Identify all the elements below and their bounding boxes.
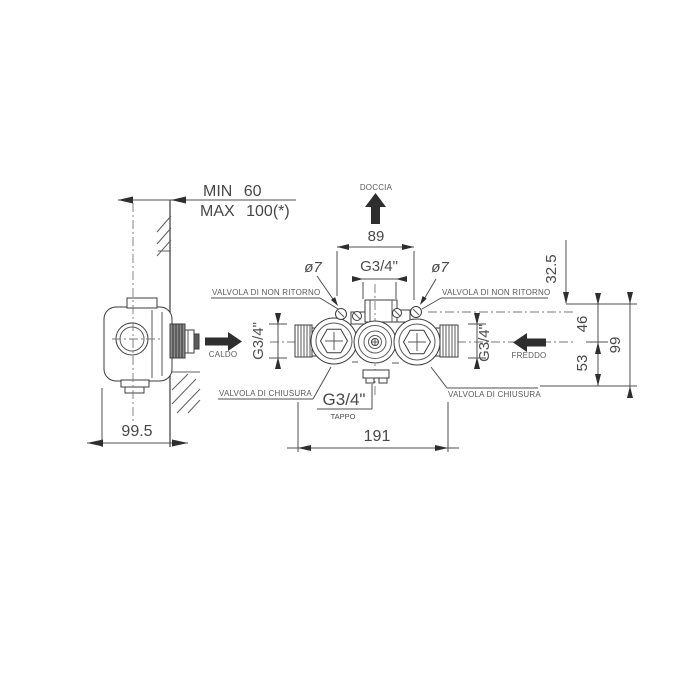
dim-53-value: 53: [574, 355, 591, 372]
left-thread-label: G3/4": [250, 322, 267, 360]
hot-arrow-icon: [205, 332, 242, 351]
dim-overall-191: 191: [287, 402, 459, 452]
valve-technical-drawing: MIN 60 MAX 100(*) 99.5: [0, 0, 700, 700]
o7-right-label: ø7: [431, 259, 449, 276]
check-valve-right-label: VALVOLA DI NON RITORNO: [442, 288, 550, 297]
shower-outlet: DOCCIA: [360, 183, 393, 224]
dim-191-value: 191: [364, 428, 391, 445]
cold-inlet: FREDDO: [512, 333, 547, 360]
hot-inlet: CALDO: [205, 332, 242, 359]
plug-callout: G3/4" TAPPO: [317, 384, 372, 421]
shower-arrow-icon: [365, 193, 386, 224]
shower-outlet-label: DOCCIA: [360, 183, 393, 192]
check-valve-callout-right: VALVOLA DI NON RITORNO: [422, 288, 550, 309]
shutoff-callout-left: VALVOLA DI CHIUSURA: [218, 367, 331, 399]
dim-89-value: 89: [368, 228, 385, 245]
dim-99-value: 99: [607, 337, 624, 354]
plug-label: TAPPO: [331, 412, 356, 421]
side-view: MIN 60 MAX 100(*) 99.5: [87, 183, 296, 447]
dim-left-thread: G3/4": [250, 313, 287, 369]
dim-depth-value: 99.5: [121, 423, 152, 440]
cartridge-stem-side: [170, 324, 199, 358]
right-thread-label: G3/4": [476, 324, 493, 362]
top-thread-label: G3/4": [360, 258, 398, 275]
left-valve: [311, 318, 357, 364]
bottom-plug-cap: [363, 370, 389, 378]
dim-top-thread: G3/4": [352, 258, 407, 299]
dim-32-5-value: 32.5: [543, 254, 560, 283]
check-valve-callout-left: VALVOLA DI NON RITORNO: [211, 288, 338, 309]
hot-label: CALDO: [209, 350, 238, 359]
dim-body-depth: 99.5: [87, 388, 188, 447]
check-valve-left-label: VALVOLA DI NON RITORNO: [212, 288, 320, 297]
dim-max-label: MAX 100(*): [200, 203, 290, 220]
right-valve: [394, 319, 440, 365]
front-view: DOCCIA 89 G3/4" ø7 ø7: [205, 183, 637, 452]
cold-arrow-icon: [513, 333, 546, 352]
shower-port-block: [365, 300, 397, 322]
dim-right-thread: G3/4": [468, 313, 493, 369]
dim-heights-right: 32.5 46 53 99: [540, 240, 637, 398]
wall-hatch-bottom: [170, 372, 200, 413]
technical-drawing-page: MIN 60 MAX 100(*) 99.5: [0, 0, 700, 700]
dim-46-value: 46: [574, 316, 591, 333]
o7-left-label: ø7: [304, 259, 322, 276]
shutoff-callout-right: VALVOLA DI CHIUSURA: [431, 367, 541, 399]
cold-label: FREDDO: [512, 351, 547, 360]
dim-wall-depth: MIN 60 MAX 100(*): [118, 183, 296, 220]
dim-min-label: MIN 60: [203, 183, 262, 200]
shutoff-right-label: VALVOLA DI CHIUSURA: [448, 390, 541, 399]
plug-thread-label: G3/4": [323, 390, 366, 409]
wall-hatch-top: [157, 216, 171, 256]
shutoff-left-label: VALVOLA DI CHIUSURA: [219, 389, 312, 398]
